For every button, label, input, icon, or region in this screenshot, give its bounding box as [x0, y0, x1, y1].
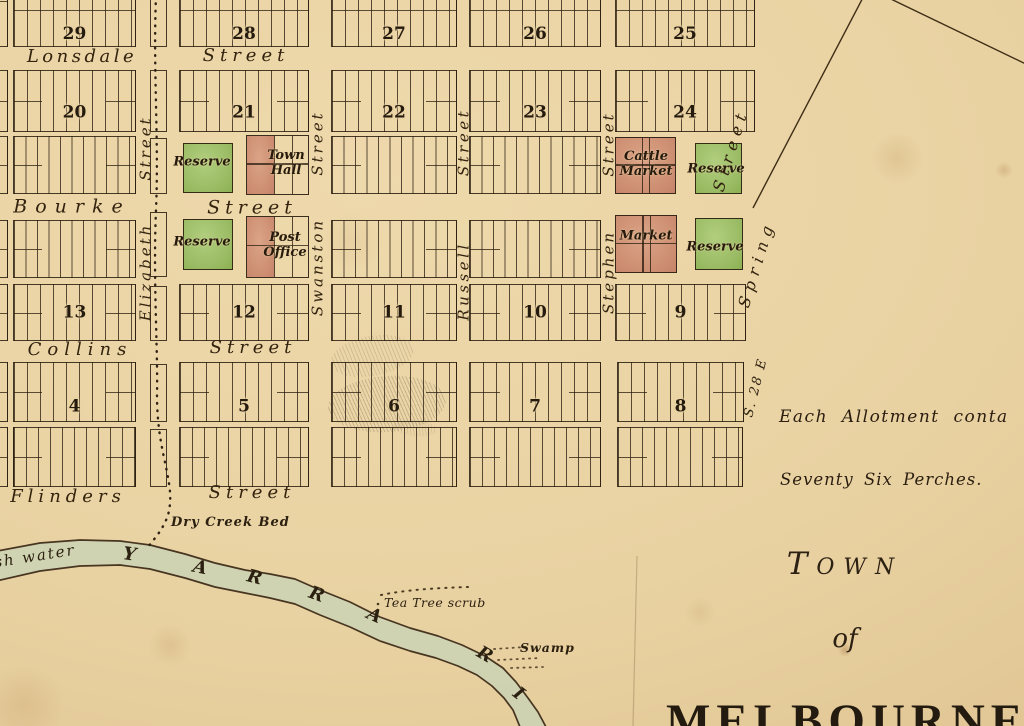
street-suffix-elizabeth: Street: [139, 115, 154, 180]
reserve-label: Reserve: [173, 155, 230, 170]
street-name-lonsdale: Lonsdale: [27, 48, 137, 66]
street-suffix-russell: Street: [457, 108, 472, 176]
yarra-river-letter: R: [306, 584, 326, 606]
tea-tree-scrub-label: Tea Tree scrub: [384, 597, 486, 610]
street-name-swanston: Swanston: [311, 218, 326, 316]
street-suffix-spring: Street: [711, 106, 752, 193]
street-suffix-swanston: Street: [311, 110, 326, 175]
yarra-river-letter: Y: [122, 545, 137, 565]
yarra-river-letter: I: [509, 684, 527, 703]
street-name-spring: Spring: [736, 218, 778, 309]
street-suffix-stephen: Street: [602, 111, 617, 176]
allotment-note-line2: Seventy Six Perches.: [780, 470, 982, 489]
street-labels: ReserveTownHallCattleMarketReserveReserv…: [0, 0, 1024, 726]
yarra-river-letter: R: [474, 643, 496, 666]
map-title-town: Town: [745, 546, 945, 582]
allotment-note-line1: Each Allotment conta: [779, 407, 1009, 427]
street-name-elizabeth: Elizabeth: [139, 223, 154, 322]
building-label: PostOffice: [263, 230, 306, 260]
swamp-label: Swamp: [520, 642, 575, 655]
map-title-melbourne: MELBOURNE: [666, 694, 1024, 726]
reserve-label: Reserve: [686, 240, 743, 255]
street-name-russell: Russell: [457, 241, 472, 320]
street-name-collins: Collins: [28, 341, 133, 359]
street-suffix-lonsdale: Street: [203, 47, 290, 65]
street-name-flinders: Flinders: [10, 488, 126, 506]
yarra-river-letter: R: [245, 567, 264, 588]
building-label: CattleMarket: [620, 149, 673, 179]
street-suffix-bourke: Street: [207, 199, 297, 218]
building-label: Market: [620, 229, 673, 244]
melbourne-town-plan-map: 2928272625202122232413121110945678 Reser…: [0, 0, 1024, 726]
street-name-stephen: Stephen: [602, 230, 617, 314]
yarra-river-letter: A: [191, 558, 208, 579]
street-suffix-collins: Street: [210, 339, 297, 357]
building-label: TownHall: [267, 148, 305, 178]
map-title-of: of: [745, 624, 945, 654]
reserve-label: Reserve: [173, 235, 230, 250]
yarra-river-letter: A: [364, 605, 384, 627]
street-suffix-flinders: Street: [209, 484, 296, 502]
dry-creek-bed-label: Dry Creek Bed: [171, 516, 290, 529]
street-name-bourke: Bourke: [13, 198, 130, 217]
